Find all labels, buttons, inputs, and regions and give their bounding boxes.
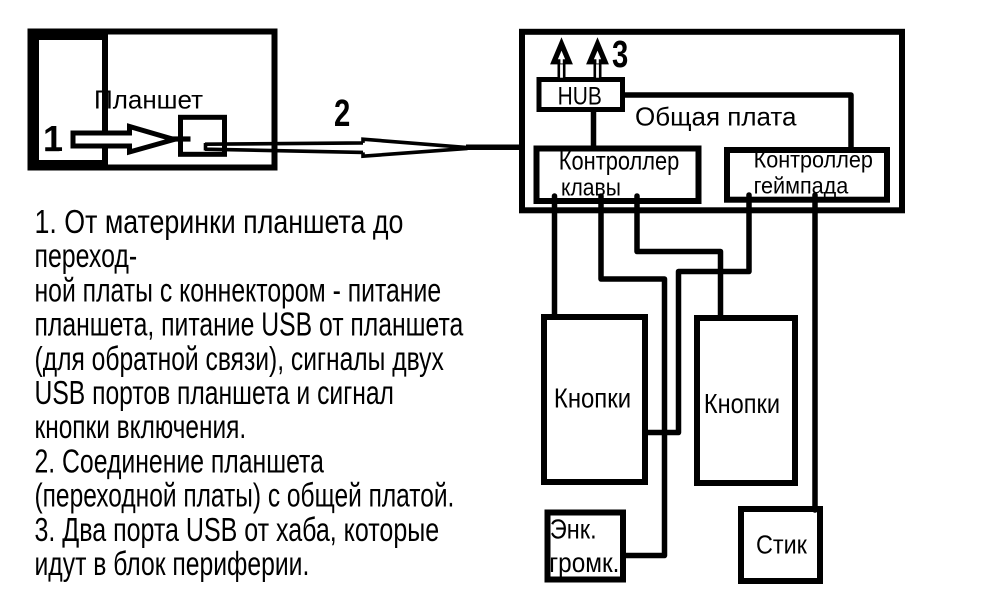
svg-text:1. От материнки планшета до: 1. От материнки планшета до [35, 204, 404, 240]
svg-text:Энк.: Энк. [550, 514, 597, 544]
svg-text:громк.: громк. [549, 546, 619, 578]
svg-text:Кнопки: Кнопки [704, 389, 780, 419]
svg-text:переход-: переход- [35, 239, 138, 275]
svg-text:3: 3 [612, 33, 628, 76]
svg-text:HUB: HUB [558, 82, 602, 110]
svg-text:Контроллер: Контроллер [559, 147, 679, 176]
svg-text:планшета, питание USB от планш: планшета, питание USB от планшета [35, 307, 464, 343]
svg-text:Кнопки: Кнопки [554, 382, 631, 414]
svg-text:1: 1 [43, 118, 63, 159]
svg-text:USB портов планшета и сигнал: USB портов планшета и сигнал [35, 376, 394, 412]
svg-text:2: 2 [334, 92, 350, 135]
svg-text:2. Соединение планшета: 2. Соединение планшета [35, 444, 325, 480]
svg-text:ной платы с коннектором - пита: ной платы с коннектором - питание [35, 273, 442, 309]
svg-text:геймпада: геймпада [754, 173, 849, 199]
svg-text:кнопки включения.: кнопки включения. [35, 410, 247, 446]
svg-text:(для обратной связи), сигналы: (для обратной связи), сигналы двух [35, 341, 445, 377]
svg-text:Общая плата: Общая плата [635, 101, 797, 131]
svg-text:Контроллер: Контроллер [754, 147, 873, 173]
svg-text:Стик: Стик [756, 531, 807, 559]
svg-text:клавы: клавы [561, 174, 621, 201]
svg-text:идут в блок периферии.: идут в блок периферии. [35, 547, 310, 583]
svg-text:3. Два порта USB от хаба, кото: 3. Два порта USB от хаба, которые [35, 511, 440, 548]
svg-text:(переходной платы) с общей пла: (переходной платы) с общей платой. [35, 478, 455, 514]
svg-text:Планшет: Планшет [94, 85, 203, 115]
